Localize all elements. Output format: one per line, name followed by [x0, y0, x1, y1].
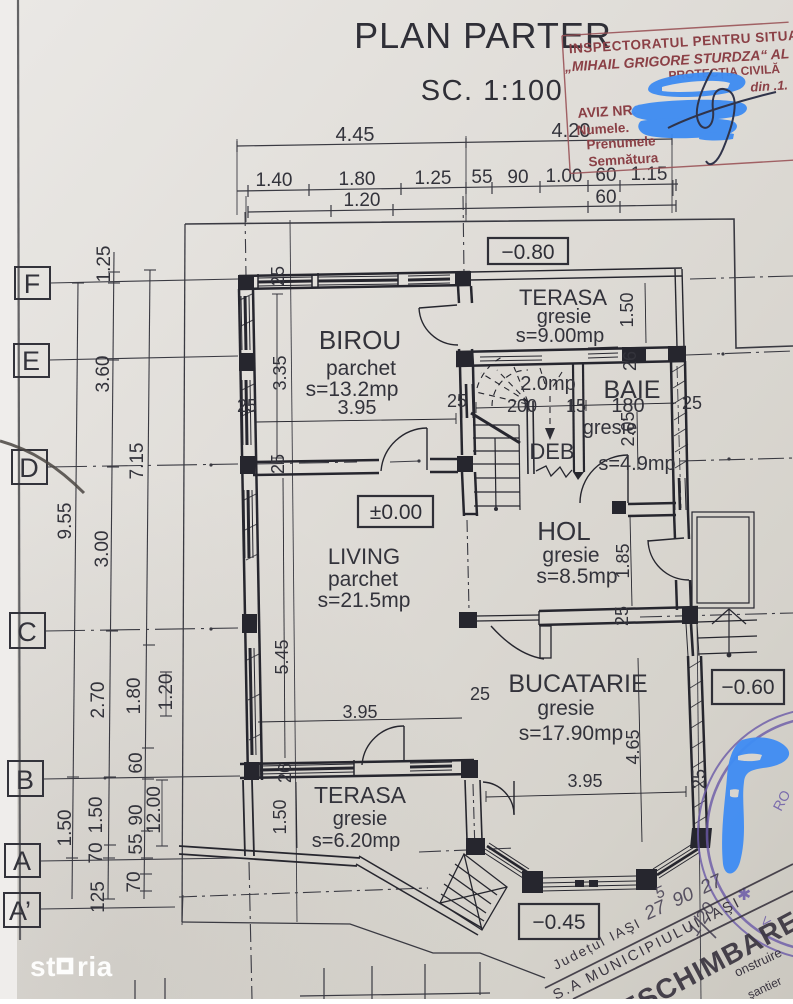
svg-text:s=9.00mp: s=9.00mp: [516, 325, 604, 347]
svg-text:s=4.9mp: s=4.9mp: [598, 453, 675, 475]
svg-text:2.05: 2.05: [618, 411, 638, 446]
svg-text:C: C: [17, 617, 37, 647]
svg-text:4.45: 4.45: [336, 124, 375, 146]
svg-text:25: 25: [447, 391, 467, 411]
svg-text:1.50: 1.50: [270, 799, 290, 834]
svg-text:A’: A’: [9, 896, 31, 926]
svg-text:F: F: [24, 269, 41, 299]
svg-text:1.15: 1.15: [631, 164, 668, 185]
svg-text:1.40: 1.40: [256, 170, 293, 191]
svg-text:25: 25: [268, 454, 288, 474]
svg-text:3.95: 3.95: [338, 397, 377, 419]
svg-text:1.25: 1.25: [415, 168, 452, 189]
svg-text:1.50: 1.50: [55, 810, 76, 847]
svg-text:25: 25: [612, 606, 632, 626]
svg-text:SC. 1:100: SC. 1:100: [421, 75, 563, 107]
svg-text:1.20: 1.20: [156, 674, 177, 711]
svg-text:4.65: 4.65: [623, 729, 643, 764]
svg-text:2.0mp: 2.0mp: [520, 373, 576, 395]
svg-text:26: 26: [275, 763, 295, 783]
svg-text:9.55: 9.55: [55, 503, 76, 540]
svg-text:60: 60: [595, 187, 616, 208]
svg-text:parchet: parchet: [326, 357, 396, 380]
svg-text:70: 70: [124, 871, 145, 892]
svg-text:1.80: 1.80: [124, 678, 145, 715]
svg-text:s=6.20mp: s=6.20mp: [312, 830, 400, 852]
svg-text:−0.80: −0.80: [501, 241, 554, 264]
svg-text:HOL: HOL: [537, 516, 590, 546]
svg-text:LIVING: LIVING: [328, 544, 400, 569]
svg-text:s=21.5mp: s=21.5mp: [318, 589, 411, 612]
svg-text:DEB: DEB: [529, 439, 574, 464]
svg-text:3.60: 3.60: [93, 356, 114, 393]
svg-text:5.45: 5.45: [272, 639, 292, 674]
svg-text:1.20: 1.20: [344, 190, 381, 211]
svg-text:25: 25: [689, 769, 709, 789]
svg-text:25: 25: [470, 684, 490, 704]
svg-text:BUCATARIE: BUCATARIE: [508, 670, 647, 698]
svg-text:gresie: gresie: [333, 808, 387, 830]
svg-text:s=8.5mp: s=8.5mp: [536, 565, 617, 588]
svg-text:BIROU: BIROU: [319, 325, 401, 355]
svg-text:3.95: 3.95: [342, 702, 377, 722]
svg-text:gresie: gresie: [542, 544, 599, 567]
svg-text:1.50: 1.50: [86, 797, 107, 834]
svg-text:din .1.: din .1.: [750, 77, 788, 94]
svg-text:ria: ria: [77, 951, 113, 982]
svg-text:125: 125: [88, 881, 109, 913]
svg-text:±0.00: ±0.00: [370, 501, 422, 524]
svg-text:12.00: 12.00: [144, 786, 165, 834]
svg-text:A: A: [13, 846, 31, 876]
svg-text:E: E: [22, 346, 40, 376]
svg-text:−0.45: −0.45: [532, 911, 585, 934]
svg-text:26: 26: [620, 351, 640, 371]
svg-text:−0.60: −0.60: [721, 676, 774, 699]
svg-text:3.35: 3.35: [270, 355, 290, 390]
svg-text:1.50: 1.50: [617, 292, 637, 327]
svg-text:TERASA: TERASA: [314, 782, 407, 808]
svg-text:25: 25: [268, 266, 288, 286]
svg-text:gresie: gresie: [537, 697, 594, 720]
svg-text:7.15: 7.15: [127, 443, 148, 480]
svg-text:2.70: 2.70: [88, 682, 109, 719]
svg-text:parchet: parchet: [328, 568, 398, 591]
svg-text:55: 55: [471, 167, 492, 188]
svg-text:60: 60: [126, 752, 147, 773]
svg-text:1.85: 1.85: [613, 543, 633, 578]
svg-text:B: B: [16, 765, 34, 795]
svg-text:s=17.90mp: s=17.90mp: [519, 722, 624, 745]
svg-text:200: 200: [507, 396, 537, 416]
svg-text:1.80: 1.80: [339, 169, 376, 190]
svg-text:25: 25: [682, 393, 702, 413]
svg-text:3.00: 3.00: [92, 531, 113, 568]
svg-text:55: 55: [126, 833, 147, 854]
svg-text:70: 70: [86, 842, 107, 863]
svg-text:1.00: 1.00: [546, 166, 583, 187]
svg-text:1.25: 1.25: [94, 246, 115, 283]
svg-text:st: st: [30, 951, 56, 982]
svg-text:90: 90: [507, 167, 528, 188]
svg-text:25: 25: [237, 396, 257, 416]
svg-text:15: 15: [566, 396, 586, 416]
svg-text:3.95: 3.95: [567, 771, 602, 791]
